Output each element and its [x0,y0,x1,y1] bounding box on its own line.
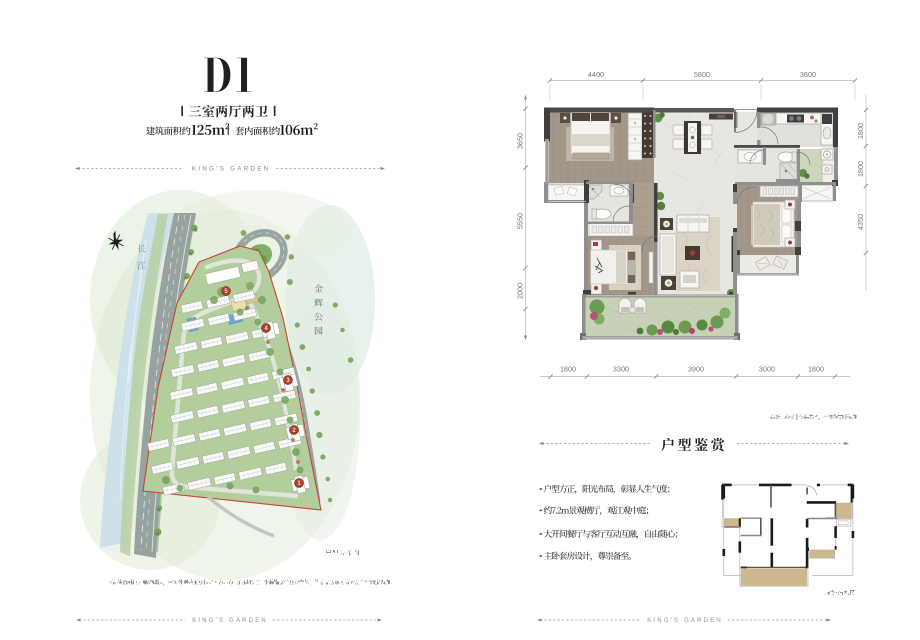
svg-text:3000: 3000 [759,365,775,374]
svg-text:1800: 1800 [856,161,865,177]
svg-text:3300: 3300 [613,365,629,374]
svg-text:1800: 1800 [808,365,824,374]
svg-text:4350: 4350 [856,214,865,230]
svg-text:5800: 5800 [694,70,710,79]
svg-text:3650: 3650 [516,133,525,149]
svg-text:KING'S GARDEN: KING'S GARDEN [192,166,271,173]
svg-text:KING'S GARDEN: KING'S GARDEN [647,618,723,624]
svg-text:1800: 1800 [560,365,576,374]
svg-text:KING'S GARDEN: KING'S GARDEN [192,618,268,624]
svg-text:4400: 4400 [588,70,604,79]
svg-text:2000: 2000 [516,283,525,299]
svg-text:3900: 3900 [688,365,704,374]
svg-text:5550: 5550 [516,213,525,229]
svg-text:3600: 3600 [800,70,816,79]
svg-text:1800: 1800 [856,123,865,139]
